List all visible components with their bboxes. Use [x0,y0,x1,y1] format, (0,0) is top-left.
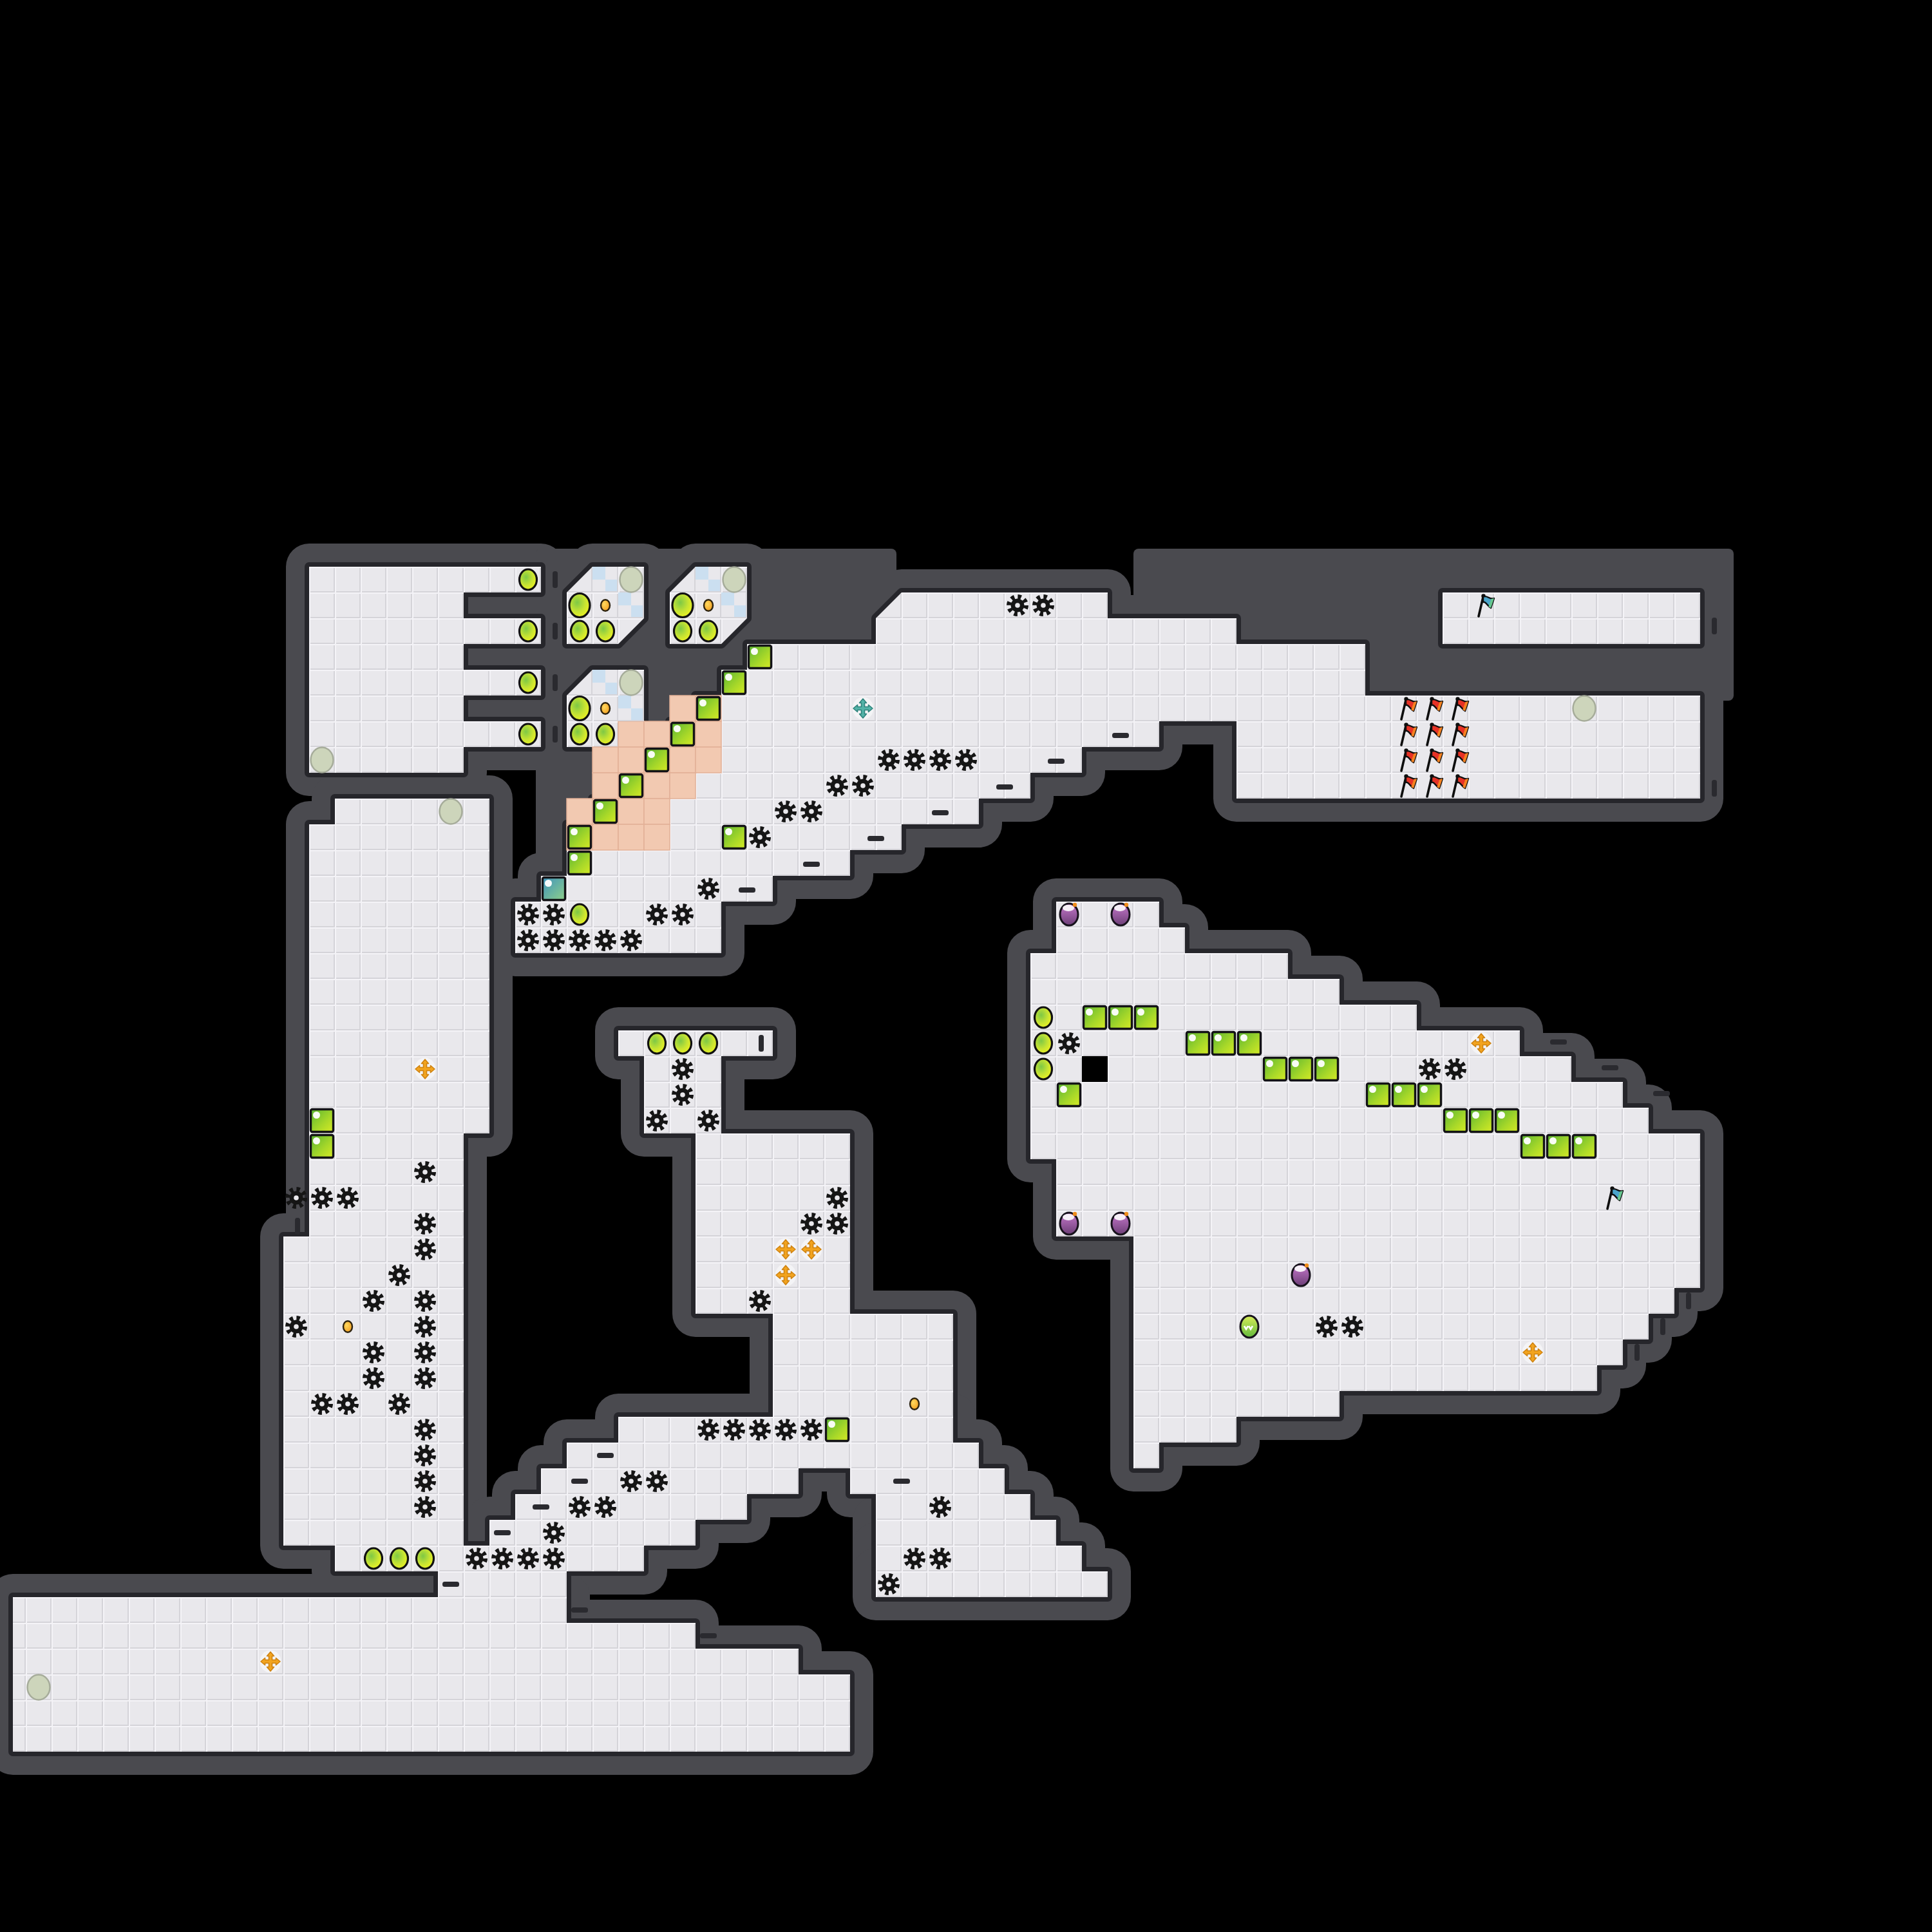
coin-icon [417,1548,434,1569]
coin-icon [520,569,537,590]
coin-icon [1035,1007,1052,1028]
floor-left-tall-room [283,799,489,1571]
wall-tick [932,810,949,815]
pink-floor-tile [644,721,670,747]
wall-tick [893,1479,910,1484]
coin-icon [571,621,589,641]
wall-tick [553,623,558,639]
level-map-canvas [0,0,1932,1932]
small-dot-icon [343,1321,352,1332]
coin-icon [520,672,537,693]
green-pad-icon [311,1135,334,1158]
wall-tick [553,674,558,691]
big-coin-icon [569,697,590,721]
floor-bottom-corridor-57R [850,1468,1005,1494]
green-pad-icon [1135,1007,1158,1029]
pink-floor-tile [618,721,644,747]
wall-tick [1660,1318,1665,1335]
floor-stair-band-28 [670,721,1159,747]
pale-circle-icon [440,799,462,824]
pale-circle-icon [1573,696,1596,721]
green-pad-icon [1264,1058,1287,1081]
green-pad-icon [311,1110,334,1132]
green-pad-icon [569,826,591,849]
orange-cross-icon [1471,1032,1492,1055]
green-pad-icon [1496,1110,1519,1132]
small-dot-icon [910,1398,919,1410]
floor-three-coin-bar [618,1030,773,1056]
coin-icon [365,1548,383,1569]
big-coin-icon [672,594,693,618]
wall-tick [700,1633,717,1638]
floor-bottom-corridor-61R [876,1571,1108,1597]
green-pad-icon [1058,1084,1081,1106]
green-pad-icon [749,646,772,668]
wall-tick [1112,733,1129,738]
wall-tick [494,1530,511,1535]
orange-cross-icon [775,1238,797,1261]
orange-cross-icon [775,1264,797,1287]
wall-tick [1048,759,1065,764]
green-pad-icon [826,1419,849,1441]
coin-icon [649,1033,666,1054]
orange-cross-icon [415,1058,436,1081]
purple-orb-icon [1292,1264,1310,1286]
green-pad-icon [697,697,720,720]
floor-top-corridor [876,592,1108,696]
pink-floor-tile [618,824,644,850]
green-pad-icon [1238,1032,1261,1055]
coin-icon [571,904,589,925]
green-pad-icon [1367,1084,1390,1106]
green-pad-icon [1470,1110,1493,1132]
green-orb-icon [1240,1316,1258,1338]
green-pad-icon [569,852,591,875]
green-pad-icon [1573,1135,1596,1158]
floor-bottom-corridor-56 [567,1443,979,1468]
pink-floor-tile [644,799,670,824]
floor-bottom-corridor-58L [515,1494,747,1520]
ice-tile [618,592,644,618]
teal-pad-icon [543,878,565,900]
pink-floor-tile [644,824,670,850]
green-pad-icon [1187,1032,1209,1055]
pale-circle-icon [28,1675,50,1700]
wall-tick [1653,1091,1670,1096]
pink-floor-tile [567,799,592,824]
wall-tick [1602,1065,1618,1070]
wall-tick [1686,1293,1691,1309]
small-dot-icon [601,703,610,714]
green-pad-icon [1213,1032,1235,1055]
coin-icon [674,621,692,641]
ice-tile [618,696,644,721]
coin-icon [700,621,717,641]
wall-tick [295,1218,300,1235]
purple-orb-icon [1112,903,1130,925]
ice-tile [592,567,618,592]
ice-tile [721,592,747,618]
wall-tick [1550,1039,1567,1045]
pink-floor-tile [644,773,670,799]
pale-circle-icon [723,567,746,592]
green-pad-icon [672,723,694,746]
wall-tick [597,1453,614,1458]
wall-tick [1712,618,1717,634]
wall-tick [1634,1344,1640,1361]
floor-cross-room [696,1133,850,1314]
pink-floor-tile [592,747,618,773]
floor-bottom-corridor-60R [876,1546,1082,1571]
wall-tick [442,1582,459,1587]
coin-icon [391,1548,408,1569]
pale-circle-icon [620,670,643,696]
wall-tick [996,784,1013,790]
green-pad-icon [1110,1007,1132,1029]
floor-top-corridor-step [1108,618,1236,696]
pale-circle-icon [311,748,334,773]
green-pad-icon [1084,1007,1106,1029]
green-pad-icon [1444,1110,1467,1132]
black-hole-tile [1082,1056,1108,1082]
coin-icon [520,724,537,744]
wall-tick [739,887,755,893]
coin-icon [1035,1059,1052,1079]
pink-floor-tile [670,696,696,721]
green-pad-icon [723,826,746,849]
coin-icon [597,621,614,641]
pink-floor-tile [618,799,644,824]
floor-mid-lower-room [773,1314,953,1417]
wall-tick [803,862,820,867]
green-pad-icon [1290,1058,1312,1081]
green-pad-icon [1419,1084,1441,1106]
coin-icon [674,1033,692,1054]
green-pad-icon [1548,1135,1570,1158]
green-pad-icon [723,672,746,694]
wall-tick [1712,780,1717,797]
green-pad-icon [1522,1135,1544,1158]
wall-tick [533,1504,549,1510]
big-coin-icon [569,594,590,618]
coin-icon [597,724,614,744]
wall-tick [571,1479,588,1484]
pink-floor-tile [696,721,721,747]
floor-bottom-corridor-59L [489,1520,696,1546]
pink-floor-tile [618,747,644,773]
small-dot-icon [601,600,610,611]
floor-stair-band-34 [541,876,773,902]
wall-tick [759,1035,764,1052]
pink-floor-tile [670,747,696,773]
green-pad-icon [646,749,668,772]
game-level-map [0,0,1932,1932]
purple-orb-icon [1060,903,1078,925]
green-pad-icon [620,775,643,797]
ice-tile [696,567,721,592]
pink-floor-tile [592,773,618,799]
wall-tick [571,1607,588,1613]
small-dot-icon [704,600,713,611]
floor-bottom-left-room [13,1597,850,1752]
purple-orb-icon [1112,1212,1130,1235]
teal-cross-icon [853,697,874,720]
coin-icon [1035,1033,1052,1054]
coin-icon [700,1033,717,1054]
pink-floor-tile [696,747,721,773]
orange-cross-icon [801,1238,822,1261]
floor-stair-band-26 [721,670,902,696]
green-pad-icon [1393,1084,1416,1106]
coin-icon [520,621,537,641]
floor-stair-band-27 [696,696,1236,721]
orange-cross-icon [1522,1341,1544,1364]
purple-orb-icon [1060,1212,1078,1235]
green-pad-icon [1316,1058,1338,1081]
ice-tile [592,670,618,696]
orange-cross-icon [260,1651,281,1673]
pale-circle-icon [620,567,643,592]
wall-tick [553,726,558,743]
floor-bottom-corridor-59R [876,1520,1056,1546]
pink-floor-tile [592,824,618,850]
floor-bottom-corridor-58R [876,1494,1030,1520]
coin-icon [571,724,589,744]
wall-tick [553,571,558,588]
green-pad-icon [594,800,617,823]
wall-tick [867,836,884,841]
pink-floor-tile [670,773,696,799]
